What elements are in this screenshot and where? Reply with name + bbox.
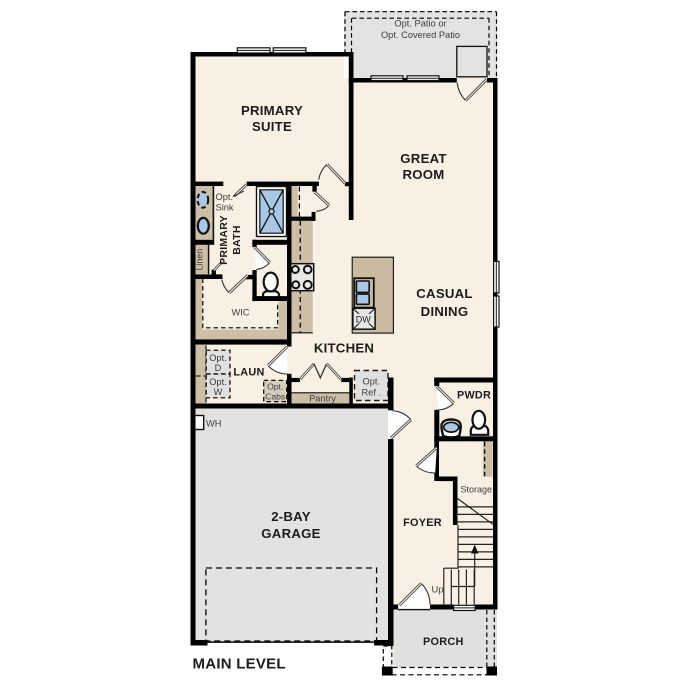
- svg-text:PWDR: PWDR: [457, 390, 491, 402]
- svg-text:DW: DW: [356, 314, 371, 324]
- svg-text:DINING: DINING: [421, 304, 469, 319]
- svg-text:Opt. Covered Patio: Opt. Covered Patio: [381, 30, 460, 40]
- svg-text:Pantry: Pantry: [309, 393, 336, 403]
- svg-text:2-BAY: 2-BAY: [271, 509, 311, 524]
- svg-text:W: W: [214, 387, 223, 397]
- svg-text:D: D: [215, 363, 222, 373]
- svg-text:Cabs: Cabs: [265, 391, 285, 401]
- svg-text:PORCH: PORCH: [423, 636, 464, 648]
- svg-text:Sink: Sink: [216, 203, 234, 213]
- svg-text:Ref .: Ref .: [361, 387, 381, 397]
- svg-text:FOYER: FOYER: [403, 517, 442, 529]
- svg-text:Up: Up: [432, 584, 444, 594]
- svg-text:PRIMARY: PRIMARY: [218, 215, 230, 265]
- svg-text:Opt.: Opt.: [209, 377, 227, 387]
- svg-text:ROOM: ROOM: [402, 167, 444, 182]
- svg-text:Opt.: Opt.: [216, 192, 234, 202]
- svg-text:SUITE: SUITE: [252, 119, 292, 134]
- svg-text:GARAGE: GARAGE: [261, 526, 320, 541]
- svg-text:GREAT: GREAT: [400, 151, 446, 166]
- svg-text:MAIN LEVEL: MAIN LEVEL: [193, 656, 286, 673]
- svg-text:Opt.: Opt.: [267, 382, 283, 392]
- svg-text:Opt.: Opt.: [209, 353, 227, 363]
- svg-text:CASUAL: CASUAL: [416, 286, 472, 301]
- svg-text:KITCHEN: KITCHEN: [314, 340, 374, 355]
- svg-text:Linen: Linen: [194, 249, 204, 271]
- svg-text:PRIMARY: PRIMARY: [241, 103, 303, 118]
- svg-text:Opt. Patio or: Opt. Patio or: [394, 19, 446, 29]
- svg-text:Opt.: Opt.: [363, 377, 381, 387]
- svg-text:Storage: Storage: [461, 484, 493, 494]
- svg-text:WIC: WIC: [231, 307, 249, 317]
- svg-text:LAUN: LAUN: [233, 366, 264, 378]
- svg-text:WH: WH: [206, 419, 222, 429]
- svg-text:BATH: BATH: [231, 225, 243, 254]
